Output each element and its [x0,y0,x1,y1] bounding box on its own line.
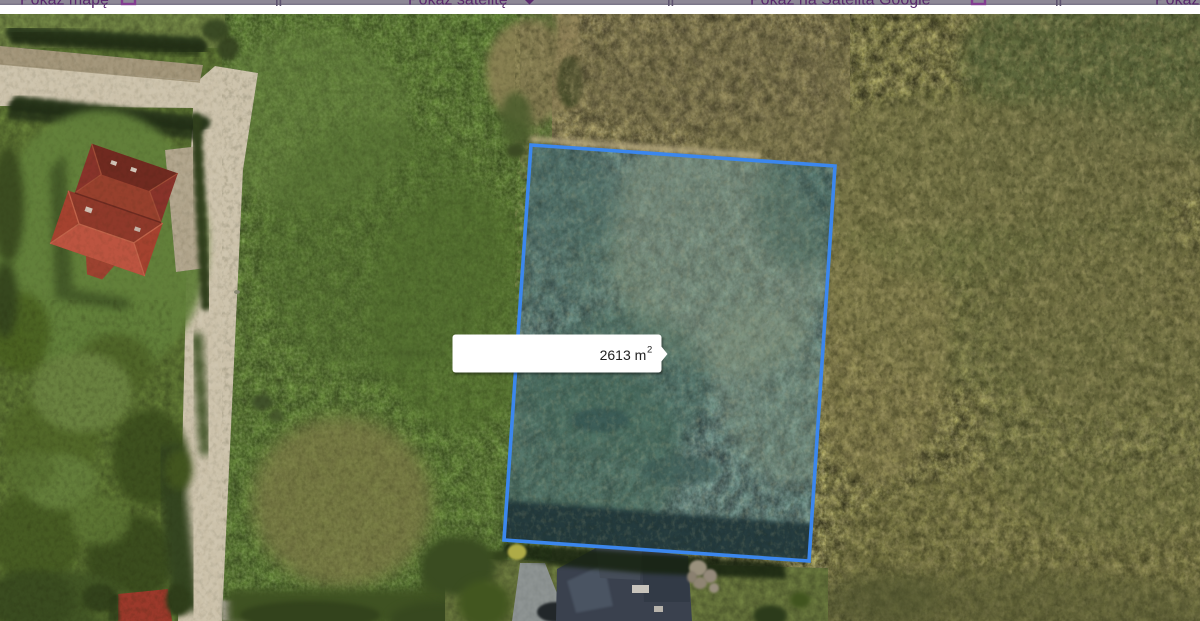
svg-text:Pokaż satelitę: Pokaż satelitę [408,0,508,8]
svg-text:2: 2 [647,345,652,356]
svg-text:Pokaż na Satelita Google: Pokaż na Satelita Google [750,0,931,8]
svg-text:Pokaż: Pokaż [1155,0,1199,8]
svg-text:Pokaż mapę: Pokaż mapę [20,0,109,8]
svg-text:2613 m: 2613 m [600,347,647,363]
